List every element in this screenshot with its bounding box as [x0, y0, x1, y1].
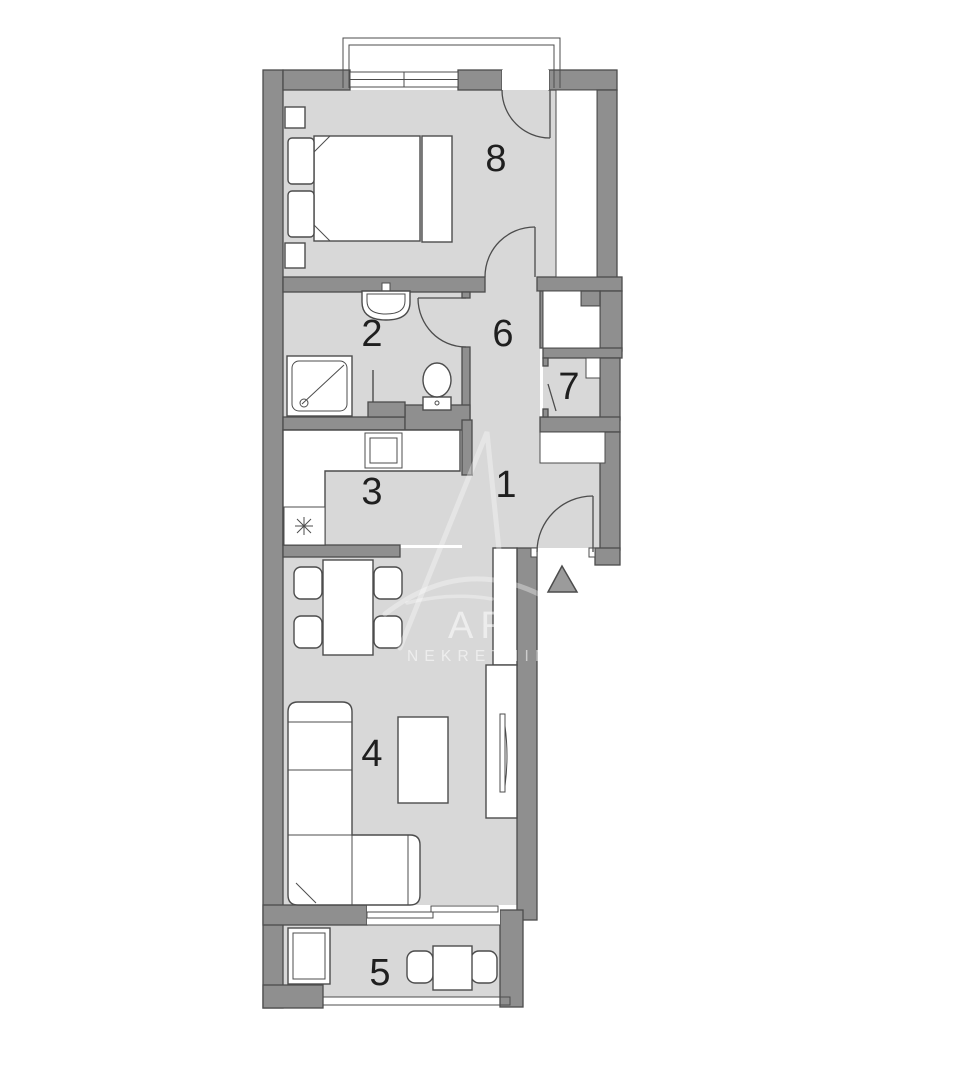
room-label-7: 7 [558, 366, 579, 408]
watermark-brand-text: AR [448, 605, 515, 647]
wardrobe [556, 90, 597, 277]
room-label-4: 4 [361, 733, 382, 775]
bed-pillow-top [288, 138, 314, 184]
wall-band-above-closet7 [543, 348, 622, 358]
wall-balcony-corner [263, 985, 323, 1008]
balcony-railing [323, 997, 510, 1005]
dining-chair-top-left [294, 567, 322, 599]
sliding-door-leaf-right [431, 906, 498, 912]
nightstand-bottom [285, 243, 305, 268]
sliding-door-leaf-left [367, 912, 433, 918]
wall-entry-jamb [595, 548, 620, 565]
nightstand-top [285, 107, 305, 128]
bed-pillow-bottom [288, 191, 314, 237]
wall-right-upper [597, 90, 617, 278]
wall-closet7-jamb-bottom [543, 409, 548, 417]
stove-star-icon [295, 517, 313, 535]
room-label-8: 8 [485, 138, 506, 180]
wall-living-bottom [263, 905, 367, 925]
wall-balcony-right [500, 910, 523, 1007]
room-label-6: 6 [492, 313, 513, 355]
toilet-base [423, 397, 451, 410]
coffee-table [398, 717, 448, 803]
bathroom-doorway-floor [462, 298, 470, 347]
wall-band-bedroom-bottom-right [537, 277, 622, 291]
dining-chair-bottom-left [294, 616, 322, 648]
entrance-arrow-icon [548, 566, 577, 592]
wall-living-right [517, 548, 537, 920]
room-label-3: 3 [361, 471, 382, 513]
shaft-niche-lower [540, 432, 605, 463]
dining-table [323, 560, 373, 655]
wall-bathroom-kitchen [283, 417, 405, 430]
wall-shaft-notch [581, 291, 600, 306]
bedroom-door-top-threshold [502, 70, 549, 90]
wall-top-right [549, 70, 617, 90]
apartment-floor-plan: 1 2 3 4 5 6 7 8 AR NEKRETNINE [0, 0, 960, 1092]
wall-closet7-jamb-top [543, 358, 548, 366]
closet7-doorway-floor [543, 366, 548, 409]
shower-tray [287, 356, 352, 416]
wall-right-step1 [600, 291, 622, 351]
dining-chair-top-right [374, 567, 402, 599]
watermark-tagline-text: NEKRETNINE [407, 648, 569, 665]
balcony-chair-right [471, 951, 497, 983]
entry-jamb-tick-left [531, 548, 537, 557]
balcony-table [433, 946, 472, 990]
room-label-2: 2 [361, 313, 382, 355]
wall-top-pier [458, 70, 502, 90]
wall-band-below-closet7 [540, 417, 620, 432]
wall-bathroom-hall-top [462, 292, 470, 298]
room-label-5: 5 [369, 952, 390, 994]
wall-left [263, 70, 283, 1008]
wall-kitchen-living-stub [283, 545, 400, 557]
wall-right-closet7 [600, 358, 620, 420]
room-label-1: 1 [495, 464, 516, 506]
tv [500, 714, 505, 792]
storage-box [288, 928, 330, 984]
wall-top-left [283, 70, 350, 90]
bedroom-doorway-floor [485, 277, 537, 292]
closet7-notch [586, 358, 600, 378]
entry-jamb-tick-right [589, 548, 595, 557]
bed-blanket [314, 136, 420, 241]
wall-shower-stub [368, 402, 405, 417]
dining-chair-bottom-right [374, 616, 402, 648]
bed-foot [422, 136, 452, 242]
toilet-bowl [423, 363, 451, 397]
balcony-chair-left [407, 951, 433, 983]
